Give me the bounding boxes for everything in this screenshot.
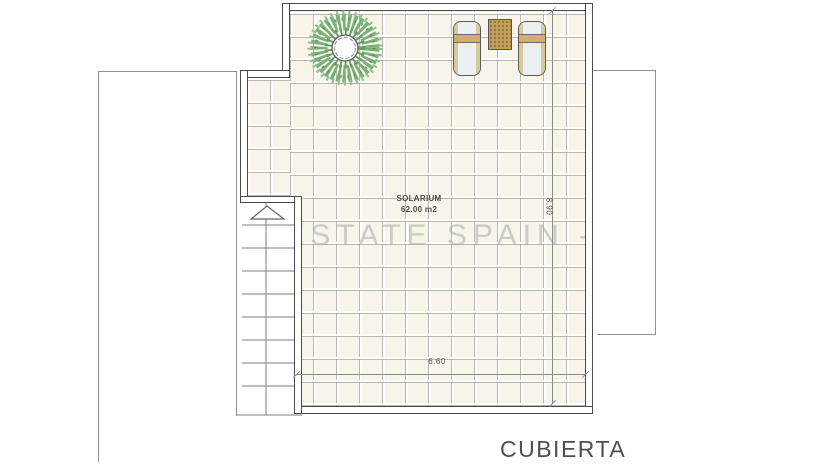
terrace-tile-floor-left-wing [247, 78, 290, 196]
building-outline-right [655, 70, 656, 335]
terrace-wall-left-mid [240, 70, 248, 203]
room-area: 62.00 m2 [369, 204, 469, 215]
lounger-rail [454, 24, 458, 73]
tree-trunk [332, 35, 358, 61]
building-outline-top-left [98, 71, 237, 72]
stair-steps [236, 203, 302, 415]
terrace-wall-right [585, 3, 593, 414]
page-title: CUBIERTA [500, 436, 626, 463]
room-label: SOLARIUM 62.00 m2 [369, 193, 469, 215]
lounger-pillow [454, 34, 480, 43]
lounger-pillow [519, 34, 545, 43]
terrace-wall-bottom [294, 406, 593, 414]
floor-plan: - ESTATE SPAIN - 8.90 6.60 [0, 0, 821, 467]
dimension-line-width [296, 374, 585, 375]
lounger-rail [476, 24, 480, 73]
stairwell-wall-right [294, 196, 302, 414]
dimension-height-label: 8.90 [545, 192, 554, 222]
stair-up-arrow-icon [251, 206, 284, 219]
sun-lounger-left-icon [453, 21, 481, 76]
room-name: SOLARIUM [369, 193, 469, 204]
staircase [236, 196, 302, 418]
sun-lounger-right-icon [518, 21, 546, 76]
stairwell-wall-top [240, 196, 302, 203]
tree-icon [302, 4, 388, 90]
lounger-rail [541, 24, 545, 73]
terrace-wall-left-upper [282, 3, 290, 78]
building-outline-bottom-right [597, 334, 655, 335]
building-outline-top-right [592, 70, 655, 71]
building-outline-left [98, 71, 99, 462]
side-table-icon [488, 19, 512, 50]
stairwell-outline-left [236, 71, 237, 416]
lounger-rail [519, 24, 523, 73]
watermark: - ESTATE SPAIN - [254, 219, 574, 253]
dimension-width-label: 6.60 [407, 357, 467, 366]
